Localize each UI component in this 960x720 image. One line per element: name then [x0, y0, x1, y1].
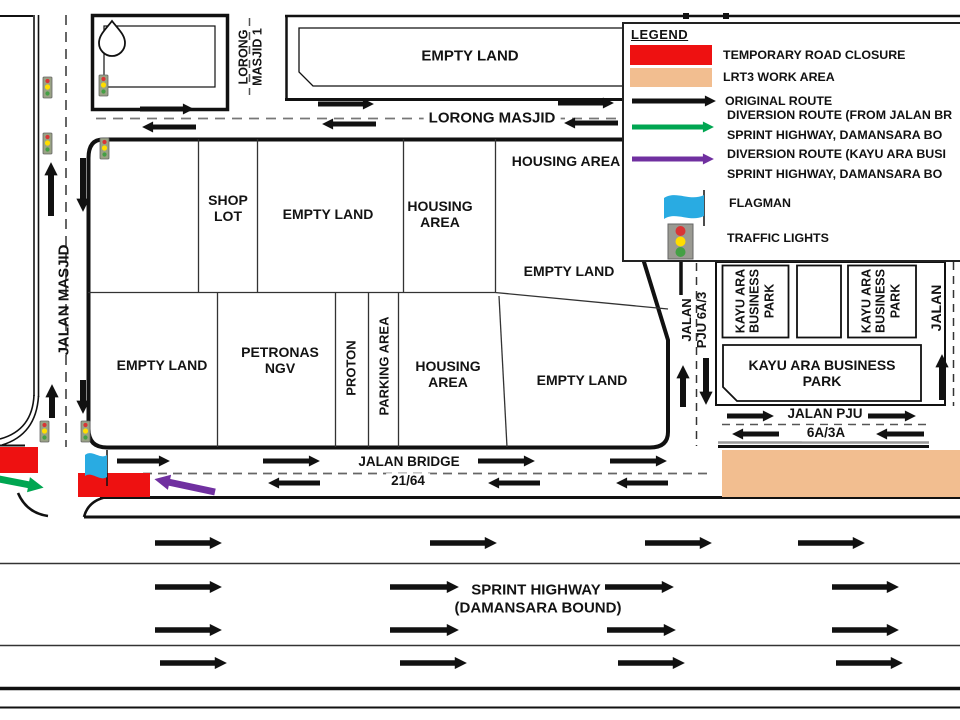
traffic-light-icon	[40, 421, 49, 442]
parcel-shop-lot: SHOPLOT	[208, 192, 248, 224]
traffic-light-icon	[43, 77, 52, 98]
legend-flagman-label: FLAGMAN	[729, 196, 791, 210]
parcel-empty-land-mid: EMPTY LAND	[283, 206, 374, 222]
road-label-jalan-pju-6a3: JALANPJU 6A/3	[680, 292, 710, 348]
traffic-lights	[40, 75, 109, 442]
road-label-jalan-bridge-2: 21/64	[386, 473, 430, 489]
parcel-parking-area: PARKING AREA	[378, 317, 393, 416]
road-label-jalan-pju-6a3a-2: 6A/3A	[802, 425, 850, 441]
legend-diversion-purple-label-2: SPRINT HIGHWAY, DAMANSARA BO	[727, 168, 942, 181]
traffic-light-icon	[43, 133, 52, 154]
road-label-jalan-masjid: JALAN MASJID	[55, 245, 72, 356]
parcel-petronas-ngv: PETRONASNGV	[241, 344, 319, 376]
diversion-arrow-green	[0, 478, 30, 485]
parcel-proton: PROTON	[345, 340, 360, 395]
road-label-jalan-pju-6a3a-1: JALAN PJU	[782, 406, 867, 422]
legend-traffic-lights-label: TRAFFIC LIGHTS	[727, 231, 829, 245]
road-label-lorong-masjid-1: LORONGMASJID 1	[237, 28, 266, 86]
traffic-diversion-map: EMPTY LAND LORONGMASJID 1 LORONG MASJID …	[0, 0, 960, 720]
road-label-sprint-highway-2: (DAMANSARA BOUND)	[455, 599, 622, 616]
traffic-light-icon	[99, 75, 108, 96]
parcel-kayu-ara-main: KAYU ARA BUSINESSPARK	[748, 357, 895, 389]
parcel-empty-land-sw: EMPTY LAND	[117, 357, 208, 373]
legend: LEGEND TEMPORARY ROAD CLOSURE LRT3 WORK …	[622, 22, 960, 262]
lrt3-work-area	[722, 450, 960, 497]
legend-diversion-green-label-2: SPRINT HIGHWAY, DAMANSARA BO	[727, 129, 942, 142]
traffic-light-legend-icon	[667, 223, 695, 261]
diversion-purple-arrow-icon	[630, 152, 722, 166]
road-closure-bridge	[78, 473, 150, 497]
parcel-housing-area-s: HOUSINGAREA	[415, 358, 480, 390]
parcel-housing-area-ne: HOUSING AREA	[512, 153, 620, 169]
road-closure-west	[0, 447, 38, 473]
road-label-jalan-bridge-1: JALAN BRIDGE	[358, 454, 459, 470]
original-route-arrow-icon	[630, 94, 722, 108]
parcel-kayu-ara-vert-2: KAYU ARABUSINESSPARK	[859, 269, 902, 333]
road-label-jalan-right: JALAN	[928, 285, 944, 332]
legend-diversion-green-label-1: DIVERSION ROUTE (FROM JALAN BR	[727, 109, 952, 122]
lrt3-swatch	[630, 68, 712, 87]
legend-title: LEGEND	[631, 27, 688, 42]
parcel-empty-land-e: EMPTY LAND	[524, 263, 615, 279]
legend-diversion-purple-label-1: DIVERSION ROUTE (KAYU ARA BUSI	[727, 148, 946, 161]
road-label-lorong-masjid: LORONG MASJID	[424, 109, 561, 126]
legend-original-route-label: ORIGINAL ROUTE	[725, 94, 832, 108]
road-label-sprint-highway-1: SPRINT HIGHWAY	[471, 581, 600, 598]
flagman-legend-icon	[662, 188, 714, 228]
parcel-empty-land-top: EMPTY LAND	[421, 47, 518, 64]
legend-lrt3-label: LRT3 WORK AREA	[723, 68, 835, 87]
diversion-green-arrow-icon	[630, 120, 722, 134]
closure-swatch	[630, 45, 712, 65]
parcel-kayu-ara-vert-1: KAYU ARABUSINESSPARK	[733, 269, 776, 333]
parcel-empty-land-se: EMPTY LAND	[537, 372, 628, 388]
parcel-housing-area-mid: HOUSINGAREA	[407, 198, 472, 230]
traffic-light-icon	[100, 138, 109, 159]
legend-closure-label: TEMPORARY ROAD CLOSURE	[723, 45, 905, 65]
diversion-arrow-purple	[168, 482, 215, 492]
traffic-light-icon	[81, 421, 90, 442]
